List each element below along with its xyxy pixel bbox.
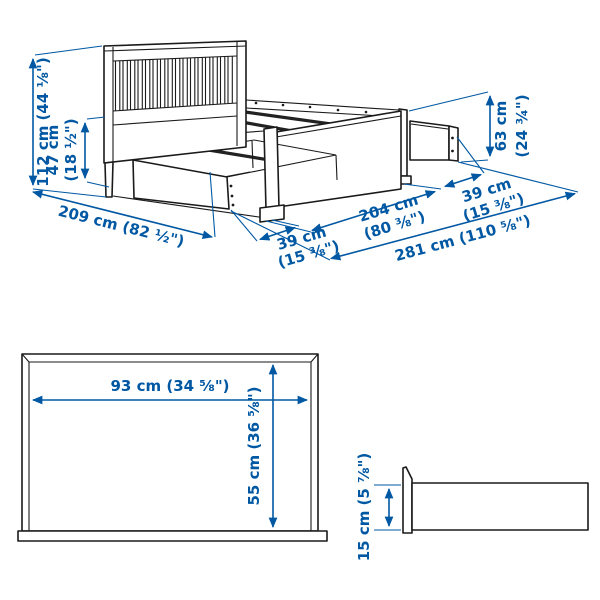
dim-label-foot-end-height-cm: 63 cm xyxy=(492,101,510,152)
dim-label-side-rail-height-in: (18 ½") xyxy=(62,118,80,181)
dim-side-view-height: 15 cm (5 ⅞") xyxy=(355,453,401,562)
dim-label-side-view-height: 15 cm (5 ⅞") xyxy=(355,453,373,562)
foot-drawer-open xyxy=(410,121,458,161)
dim-label-front-view-height: 55 cm (36 ⅝") xyxy=(245,387,263,506)
drawer-side-view: 15 cm (5 ⅞") xyxy=(355,453,588,562)
dim-side-rail-height: 47 cm (18 ½") xyxy=(44,117,109,187)
drawer-front-view: 93 cm (34 ⅝") 55 cm (36 ⅝") xyxy=(18,354,327,541)
dim-label-front-view-width: 93 cm (34 ⅝") xyxy=(111,377,230,395)
dim-label-side-rail-height-cm: 47 cm xyxy=(44,125,62,176)
furniture-dimension-diagram: 112 cm (44 ⅛") 47 cm (18 ½") 63 cm (24 ¾… xyxy=(0,0,600,600)
bed-footboard xyxy=(276,111,401,207)
dim-label-foot-end-height-in: (24 ¾") xyxy=(513,94,531,157)
